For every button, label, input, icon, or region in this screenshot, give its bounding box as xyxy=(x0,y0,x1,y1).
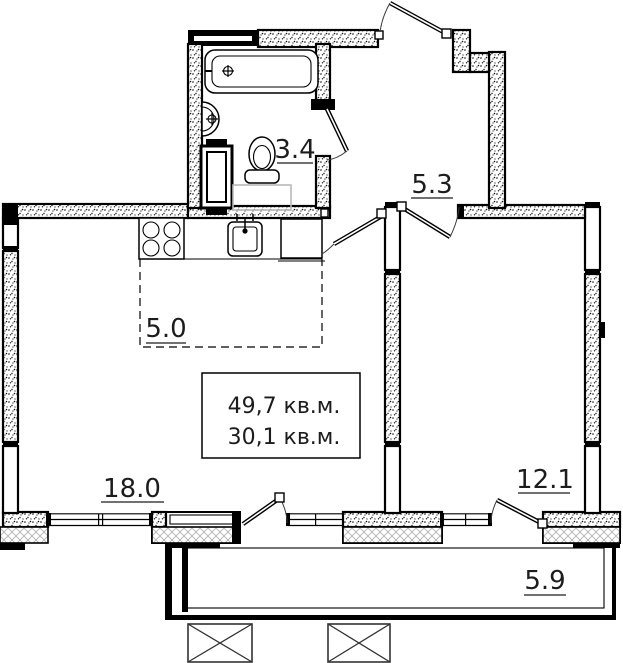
living-door-frame-stop xyxy=(321,209,328,217)
column-marker-right xyxy=(328,624,390,662)
total-area-label: 49,7 кв.м. xyxy=(228,394,341,419)
fridge xyxy=(278,219,325,261)
stove xyxy=(139,218,184,259)
balcony-area-label: 5.9 xyxy=(524,566,565,596)
entry-jamb-nub xyxy=(470,53,489,72)
top-wall-living xyxy=(3,204,188,218)
bathroom-top-wall-stripe xyxy=(194,36,252,41)
column-marker-left xyxy=(188,624,252,662)
living-room-area-label: 18.0 xyxy=(103,474,161,504)
area-box: 49,7 кв.м. 30,1 кв.м. xyxy=(202,373,360,458)
bathroom-area-label: 3.4 xyxy=(274,135,315,165)
corner-pier-left xyxy=(3,512,48,527)
west-wall xyxy=(3,218,18,513)
bedroom-area-label: 12.1 xyxy=(516,465,574,495)
balcony-inner-left xyxy=(182,548,188,612)
entry-frame-stop xyxy=(375,31,383,39)
balcony-outer-bottom xyxy=(165,615,616,620)
living-area-label: 30,1 кв.м. xyxy=(228,425,341,450)
living-bedroom-wall xyxy=(385,202,400,513)
bathtub xyxy=(205,50,318,93)
entry-jamb-right xyxy=(453,30,470,72)
top-left-corner xyxy=(2,203,18,225)
corner-pier-left-hatch xyxy=(0,527,48,543)
balcony-outer-left xyxy=(165,543,172,620)
floor-plan: 49,7 кв.м. 30,1 кв.м. 3.4 5.3 5.0 18.0 1… xyxy=(0,0,623,663)
bathroom-east-wall-lower xyxy=(316,156,330,208)
bathroom-door-lintel xyxy=(311,99,335,110)
corner-step xyxy=(0,543,25,550)
ventilation-shaft xyxy=(201,139,232,215)
pier-center xyxy=(343,512,442,543)
hall-area-label: 5.3 xyxy=(411,170,452,200)
pier-right xyxy=(543,512,620,543)
hall-east-wall xyxy=(489,52,505,208)
bedroom-top-wall xyxy=(458,205,585,218)
balcony-outer-right xyxy=(612,548,616,620)
pier-1 xyxy=(152,512,241,543)
kitchen-area-label: 5.0 xyxy=(145,314,186,344)
floor-plan-drawing: 49,7 кв.м. 30,1 кв.м. 3.4 5.3 5.0 18.0 1… xyxy=(0,0,623,663)
